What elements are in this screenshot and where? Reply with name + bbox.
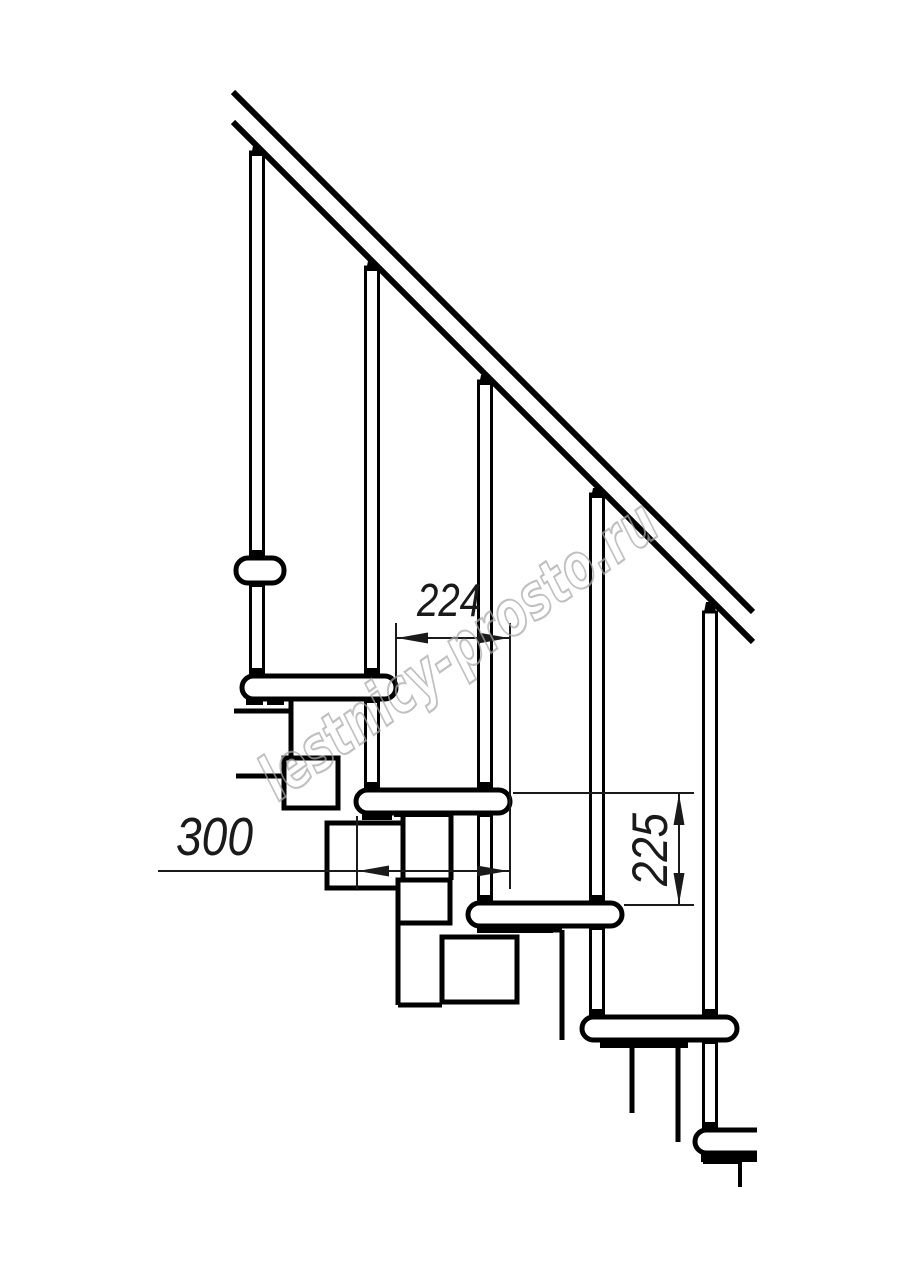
module-5 [442,937,517,1002]
baluster-2-rail-cap [366,261,378,271]
baluster-3-rail-cap [479,375,491,385]
baluster-4-rail-cap [591,488,603,498]
tread-1-mount-plate [246,697,263,705]
tread-4-mount-plate [600,1041,688,1048]
staircase-drawing-page: 224 300 225 lestnicy-prosto.ru [0,0,914,1280]
baluster-5 [704,612,717,1130]
dim-225-label: 225 [622,813,678,887]
tread-4 [582,1017,737,1040]
tread-1-mount-plate-2 [267,699,284,705]
tread-3 [468,903,622,926]
baluster-1-rail-cap [251,146,263,156]
baluster-collar [703,1038,717,1044]
baluster-collar [250,581,264,587]
module-3 [327,823,403,888]
dim-300-label: 300 [176,807,253,867]
tread-2-mount-plate [362,812,392,820]
module-4 [398,880,450,923]
baluster-1 [251,152,264,677]
tread-2-mount-plate-2 [394,812,450,817]
baluster-collar [478,811,492,817]
baluster-collar [590,924,604,930]
tread-2 [356,790,510,813]
upper-flight-tread-end [236,558,284,583]
baluster-5-rail-cap [704,602,716,612]
tread-3-mount-plate [477,926,553,933]
staircase-side-elevation: 224 300 225 lestnicy-prosto.ru [0,0,914,1280]
